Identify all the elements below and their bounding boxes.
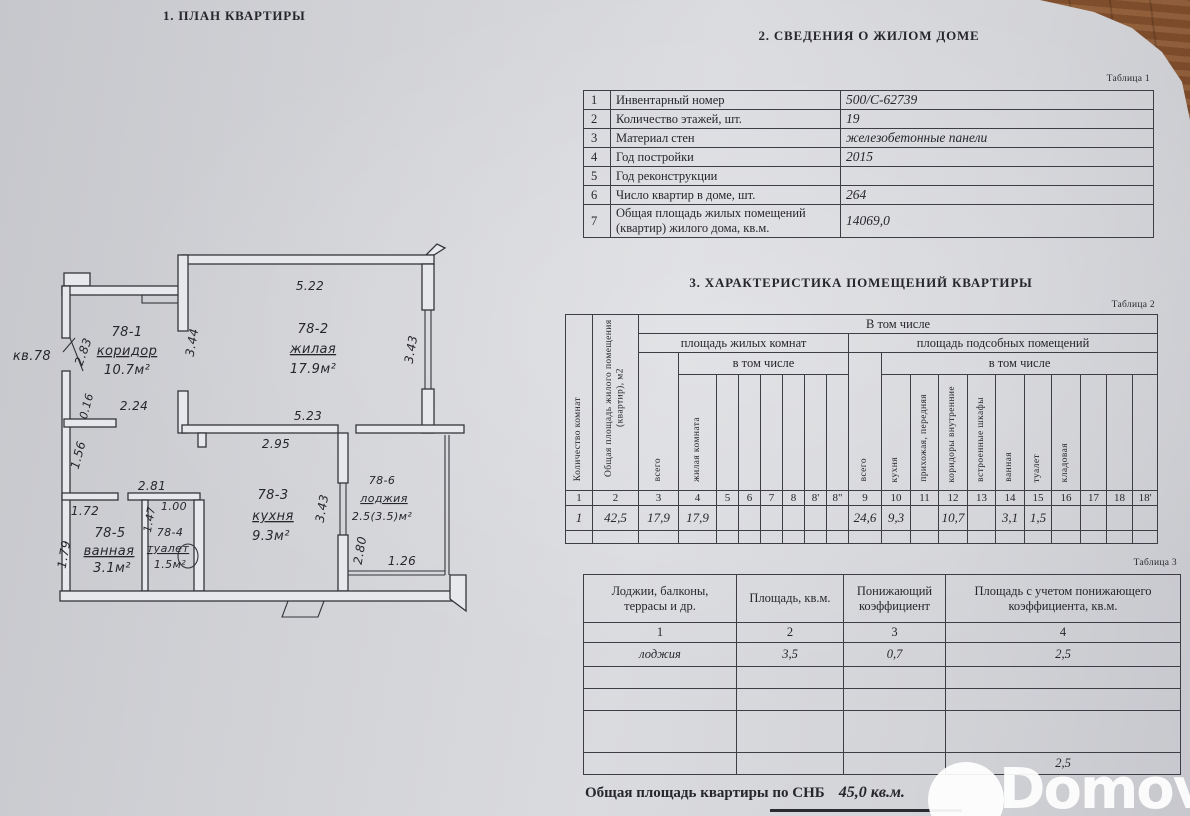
wall [338,535,348,591]
header-empty [805,375,827,491]
rooms-table-title: 3. ХАРАКТЕРИСТИКА ПОМЕЩЕНИЙ КВАРТИРЫ [565,275,1157,291]
table-row: 2Количество этажей, шт.19 [584,110,1154,129]
header-empty [717,375,739,491]
building-info-rows: 1Инвентарный номер500/С-627392Количество… [584,91,1154,238]
table-cell: 1 [566,491,593,506]
table-cell [805,531,827,544]
room-area: 9.3м² [252,529,290,544]
wall [356,425,464,433]
header-including2: в том числе [679,353,849,375]
table-cell: 2 [737,623,844,643]
table-cell: 9,3 [882,506,911,531]
dimension-label: 1.26 [388,554,416,568]
table-cell: 14 [996,491,1025,506]
wall-niche [142,295,180,303]
wall [338,433,348,483]
table-cell [761,506,783,531]
balcony-table: Лоджии, балконы, террасы и др. Площадь, … [583,574,1181,775]
table-cell [1133,531,1158,544]
table-cell: 6 [584,186,611,205]
table-cell [849,531,882,544]
apartment-label: кв.78 [13,349,51,364]
table-cell [1107,531,1133,544]
wall-corner-cap [426,244,445,255]
total-area-label: Общая площадь квартиры по СНБ [585,785,825,801]
room-label: 78-5 [94,526,125,541]
wall [182,425,338,433]
wall [422,264,434,310]
table-cell [968,531,996,544]
table-cell: 1,5 [1025,506,1052,531]
table-cell [1052,506,1081,531]
table-cell: 11 [911,491,939,506]
values-row: 142,517,917,924,69,310,73,11,5 [566,506,1158,531]
table-row [584,711,1181,753]
table-cell [1081,506,1107,531]
table-cell [946,667,1181,689]
table-cell [882,531,911,544]
header-kitchen: кухня [882,375,911,491]
table-cell: 5 [717,491,739,506]
room-label: 78-3 [257,488,288,503]
dimension-label: 2.80 [351,535,370,565]
table-cell [739,531,761,544]
table-row [584,689,1181,711]
table-cell: Инвентарный номер [611,91,841,110]
table-cell: 13 [968,491,996,506]
header-empty [1081,375,1107,491]
header-living-area: площадь жилых комнат [639,334,849,353]
table-cell [1025,531,1052,544]
table-cell [1081,531,1107,544]
dimension-label: 2.24 [120,399,148,413]
column-numbers-row: 1234 [584,623,1181,643]
column-numbers-row: 123456788'8"910111213141516171818' [566,491,1158,506]
room-area: 1.5м² [154,558,186,571]
table-cell [911,506,939,531]
header-empty [1133,375,1158,491]
table-cell: 0,7 [844,643,946,667]
table-cell: 16 [1052,491,1081,506]
room-area: 3.1м² [93,561,131,576]
table-cell [584,667,737,689]
dimension-label: 3.43 [313,493,332,523]
header-including3: в том числе [882,353,1158,375]
balcony-header-area-coef: Площадь с учетом понижающего коэффициент… [946,575,1181,623]
room-name: жилая [289,342,336,357]
dimension-label: 1.72 [71,504,99,518]
table-cell [584,689,737,711]
table-cell: 2 [593,491,639,506]
wall [178,255,188,331]
wall [64,273,90,286]
table-cell: 7 [761,491,783,506]
table-cell: Число квартир в доме, шт. [611,186,841,205]
wall-ledge [64,419,116,427]
table-cell: лоджия [584,643,737,667]
room-name: коридор [97,344,158,359]
wall [182,255,434,264]
table-cell: 8 [783,491,805,506]
room-name: лоджия [359,492,407,505]
header-wardrobes: встроенные шкафы [968,375,996,491]
table-cell [717,506,739,531]
table-cell: 4 [946,623,1181,643]
table-cell: 2,5 [946,643,1181,667]
table-cell [827,531,849,544]
room-area: 17.9м² [290,362,336,377]
dimension-label: 5.22 [296,279,324,293]
table-cell [946,711,1181,753]
balcony-header-type: Лоджии, балконы, террасы и др. [584,575,737,623]
table-cell: 3 [844,623,946,643]
wall-stub [198,433,206,447]
table-cell [761,531,783,544]
table-row: 1Инвентарный номер500/С-62739 [584,91,1154,110]
room-area: 10.7м² [104,363,150,378]
header-corridors: коридоры внутренние [939,375,968,491]
table-cell: 1 [584,623,737,643]
room-name: туалет [147,542,189,555]
table-cell: 4 [679,491,717,506]
dimension-label: 3.43 [402,334,421,364]
table2-caption: Таблица 2 [565,300,1155,310]
table-cell: 19 [841,110,1154,129]
header-pantry: кладовая [1052,375,1081,491]
table-cell: 17 [1081,491,1107,506]
table-cell: 3,1 [996,506,1025,531]
empty-row [566,531,1158,544]
table-cell [946,689,1181,711]
balcony-header-coef: Понижающий коэффициент [844,575,946,623]
table-cell: 2 [584,110,611,129]
table-cell [717,531,739,544]
table-cell [1052,531,1081,544]
table-cell: 17,9 [639,506,679,531]
table-cell [996,531,1025,544]
building-info-title: 2. СВЕДЕНИЯ О ЖИЛОМ ДОМЕ [583,28,1155,44]
signature-line [770,809,962,812]
table-cell [737,711,844,753]
table-cell: 3 [584,129,611,148]
header-total: всего [639,353,679,491]
table-cell: 3,5 [737,643,844,667]
table-cell: 12 [939,491,968,506]
table-cell [968,506,996,531]
dimension-label: 2.83 [72,336,95,367]
header-toilet: туалет [1025,375,1052,491]
table-cell: 17,9 [679,506,717,531]
table-cell [844,689,946,711]
dimension-label: 2.81 [138,479,166,493]
table-cell [783,531,805,544]
header-hallway: прихожая, передняя [911,375,939,491]
wall [62,286,182,295]
balcony-rows: лоджия3,50,72,52,5 [584,643,1181,775]
table-cell: Материал стен [611,129,841,148]
dimension-label: 2.95 [262,437,290,451]
room-label: 78-1 [111,325,142,340]
rooms-characteristics-table: Количество комнат Общая площадь жилого п… [565,314,1158,544]
table-row [584,667,1181,689]
room-name: кухня [252,509,294,524]
table-cell: Год постройки [611,148,841,167]
total-area-value: 45,0 кв.м. [839,784,905,801]
table-cell [739,506,761,531]
table-cell: 8' [805,491,827,506]
total-area-line: Общая площадь квартиры по СНБ45,0 кв.м. [585,784,905,802]
header-empty [827,375,849,491]
table-cell [584,753,737,775]
table-cell [1107,506,1133,531]
wall [62,286,70,338]
header-bathroom: ванная [996,375,1025,491]
table3-caption: Таблица 3 [583,558,1177,568]
table-cell: 15 [1025,491,1052,506]
floor-plan-drawing: кв.78 78-1 коридор 10.7м² 78-2 жилая 17.… [30,243,480,628]
room-area: 2.5(3.5)м² [352,510,412,523]
table-cell [679,531,717,544]
room-label: 78-4 [157,526,184,539]
table-cell [783,506,805,531]
table-cell: 7 [584,205,611,238]
table-row: 5Год реконструкции [584,167,1154,186]
table1-caption: Таблица 1 [583,74,1150,84]
table-cell: 6 [739,491,761,506]
dimension-label: 3.44 [183,327,202,357]
table-cell [827,506,849,531]
room-name: ванная [84,544,135,559]
table-cell: 1 [584,91,611,110]
dimension-label: 5.23 [294,409,322,423]
table-cell [939,531,968,544]
table-cell [844,753,946,775]
table-cell: Год реконструкции [611,167,841,186]
table-cell: Общая площадь жилых помещений (квартир) … [611,205,841,238]
table-cell: 8" [827,491,849,506]
wall [128,493,200,500]
wall [60,591,464,601]
header-total-area: Общая площадь жилого помещения (квартир)… [593,315,639,491]
table-cell: 10 [882,491,911,506]
table-cell [805,506,827,531]
table-row: 6Число квартир в доме, шт.264 [584,186,1154,205]
table-row: лоджия3,50,72,5 [584,643,1181,667]
header-living-room: жилая комната [679,375,717,491]
header-empty [761,375,783,491]
table-cell: 5 [584,167,611,186]
table-row: 4Год постройки2015 [584,148,1154,167]
table-cell [844,667,946,689]
header-rooms-count: Количество комнат [566,315,593,491]
table-cell [737,689,844,711]
table-cell: 10,7 [939,506,968,531]
table-cell: 264 [841,186,1154,205]
table-cell: 18' [1133,491,1158,506]
header-total-aux: всего [849,353,882,491]
table-cell [737,667,844,689]
header-aux-area: площадь подсобных помещений [849,334,1158,353]
table-row: 3Материал стенжелезобетонные панели [584,129,1154,148]
table-cell [639,531,679,544]
table-cell: 2,5 [946,753,1181,775]
table-cell [844,711,946,753]
balcony-detail [282,601,324,617]
dimension-label: 1.00 [161,500,187,513]
scanned-document-photo: { "colors": { "paper":"#d4d5d9", "wood":… [0,0,1190,816]
balcony-header-area: Площадь, кв.м. [737,575,844,623]
wall-corner [450,575,466,611]
plan-section-title: 1. ПЛАН КВАРТИРЫ [163,8,306,24]
room-label: 78-6 [369,474,396,487]
header-empty [739,375,761,491]
table-cell: Количество этажей, шт. [611,110,841,129]
table-cell: 9 [849,491,882,506]
room-label: 78-2 [297,322,328,337]
table-cell: 42,5 [593,506,639,531]
table-row: 7Общая площадь жилых помещений (квартир)… [584,205,1154,238]
table-cell: 14069,0 [841,205,1154,238]
table-cell: 4 [584,148,611,167]
dimension-label: 0.16 [77,392,96,421]
table-cell: 24,6 [849,506,882,531]
table-cell: 18 [1107,491,1133,506]
table-cell [911,531,939,544]
wall [62,493,118,500]
building-info-table: 1Инвентарный номер500/С-627392Количество… [583,90,1154,238]
table-cell: железобетонные панели [841,129,1154,148]
table-cell [593,531,639,544]
header-empty [783,375,805,491]
header-empty [1107,375,1133,491]
table-cell: 2015 [841,148,1154,167]
table-cell: 1 [566,506,593,531]
dimension-label: 1.56 [68,439,89,470]
wall [194,500,204,591]
header-including: В том числе [639,315,1158,334]
table-cell [584,711,737,753]
table-row: 2,5 [584,753,1181,775]
table-cell [737,753,844,775]
table-cell [1133,506,1158,531]
table-cell: 3 [639,491,679,506]
table-cell [841,167,1154,186]
table-cell [566,531,593,544]
table-cell: 500/С-62739 [841,91,1154,110]
